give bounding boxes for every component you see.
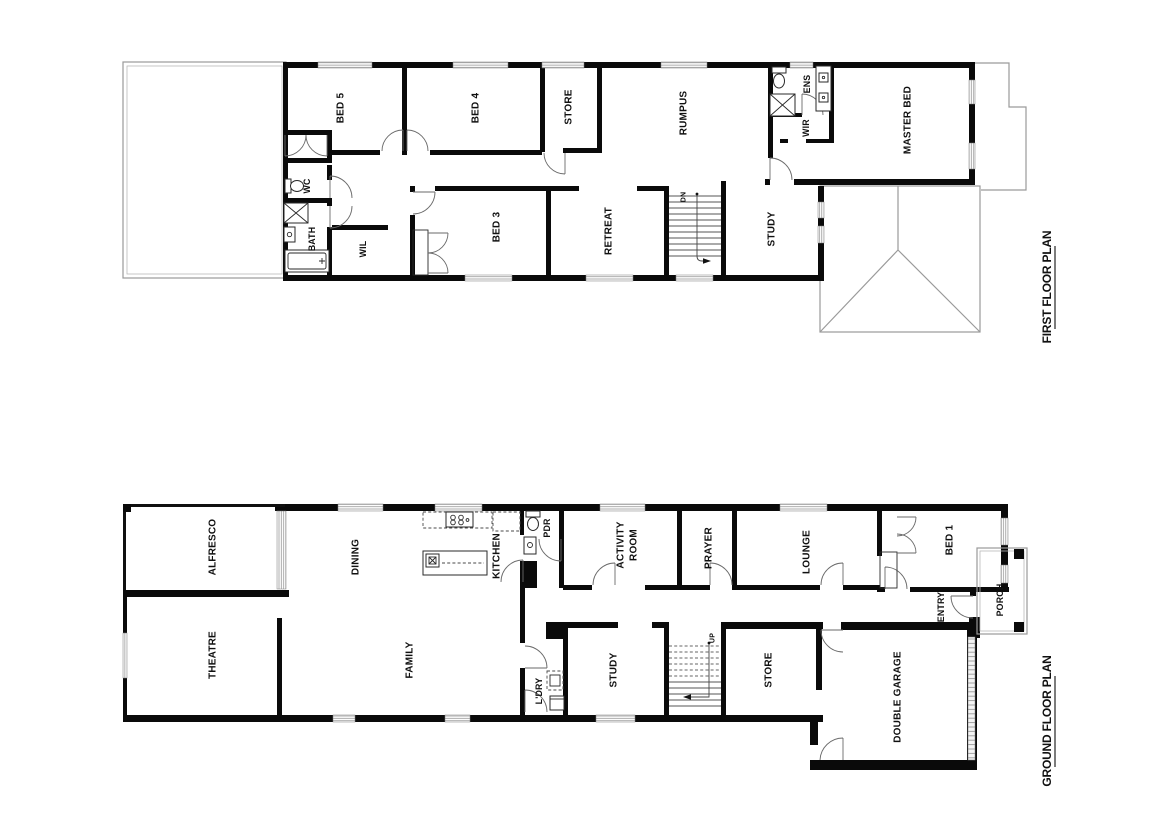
label-pdr: PDR	[542, 518, 552, 538]
ff-roof-outline	[123, 62, 1026, 332]
pdr-toilet-icon	[526, 511, 540, 531]
porch-post	[1014, 549, 1024, 559]
label-entry: ENTRY	[936, 592, 946, 623]
label-bed1: BED 1	[945, 525, 956, 556]
label-alfresco: ALFRESCO	[208, 519, 219, 576]
ens-vanity-icon	[816, 66, 831, 111]
bath-vanity-icon	[284, 227, 295, 242]
label-bath: BATH	[307, 227, 317, 252]
washer-icon	[550, 696, 564, 710]
gf-labels: ALFRESCO DINING KITCHEN PDR ACTIVITY ROO…	[208, 518, 1056, 787]
pdr-vanity-icon	[524, 537, 536, 554]
first-floor-title: FIRST FLOOR PLAN	[1040, 231, 1054, 344]
label-theatre: THEATRE	[208, 631, 219, 679]
label-double-garage: DOUBLE GARAGE	[893, 651, 904, 743]
ff-stairs	[669, 193, 721, 264]
ff-windows	[318, 62, 975, 281]
porch-post	[1014, 622, 1024, 632]
label-master-bed: MASTER BED	[903, 86, 914, 154]
alfresco-stacker-door	[277, 511, 286, 589]
label-lounge: LOUNGE	[802, 530, 813, 574]
floor-plan-page: BED 5 BED 4 STORE RUMPUS ENS WIR MASTER …	[0, 0, 1170, 828]
gf-walls	[123, 504, 1009, 770]
bathtub-icon	[285, 250, 329, 272]
cooktop-icon	[446, 512, 473, 527]
garage-door	[968, 637, 975, 760]
label-kitchen: KITCHEN	[492, 533, 503, 579]
ground-floor-plan: ALFRESCO DINING KITCHEN PDR ACTIVITY ROO…	[123, 504, 1055, 787]
bath-shower-icon	[284, 203, 308, 223]
ground-floor-title: GROUND FLOOR PLAN	[1040, 655, 1054, 786]
label-ens: ENS	[802, 75, 812, 94]
label-dining: DINING	[351, 539, 362, 575]
ens-shower-icon	[770, 94, 795, 116]
label-activity-room-line1: ACTIVITY	[616, 521, 627, 568]
label-wir: WIR	[801, 119, 811, 137]
ens-toilet-icon	[772, 67, 786, 88]
island-bench	[423, 551, 487, 575]
label-ff-study: STUDY	[767, 211, 778, 246]
label-ff-store: STORE	[564, 89, 575, 124]
label-prayer: PRAYER	[704, 526, 715, 569]
stairs-direction-arrow	[683, 694, 691, 700]
first-floor-plan: BED 5 BED 4 STORE RUMPUS ENS WIR MASTER …	[123, 62, 1055, 343]
label-wil: WIL	[358, 240, 368, 257]
label-ldry: L'DRY	[534, 678, 544, 705]
label-bed3: BED 3	[492, 212, 503, 243]
gf-stairs	[669, 642, 721, 706]
label-bed4: BED 4	[471, 93, 482, 124]
label-porch: PORCH	[995, 584, 1005, 617]
label-gf-store: STORE	[764, 652, 775, 687]
label-activity-room-line2: ROOM	[629, 529, 640, 561]
label-dn: DN	[681, 192, 688, 203]
ff-walls	[283, 62, 975, 281]
label-up: UP	[710, 633, 717, 643]
wc-toilet-icon	[285, 179, 304, 193]
laundry-tub-icon	[547, 671, 563, 690]
label-gf-study: STUDY	[609, 652, 620, 687]
label-wc: WC	[302, 178, 312, 194]
label-retreat: RETREAT	[604, 207, 615, 255]
stairs-direction-arrow	[703, 258, 711, 264]
floor-plan-canvas: BED 5 BED 4 STORE RUMPUS ENS WIR MASTER …	[0, 0, 1170, 828]
label-bed5: BED 5	[336, 93, 347, 124]
label-rumpus: RUMPUS	[679, 91, 690, 136]
label-family: FAMILY	[405, 641, 416, 678]
fridge-space	[493, 512, 520, 531]
